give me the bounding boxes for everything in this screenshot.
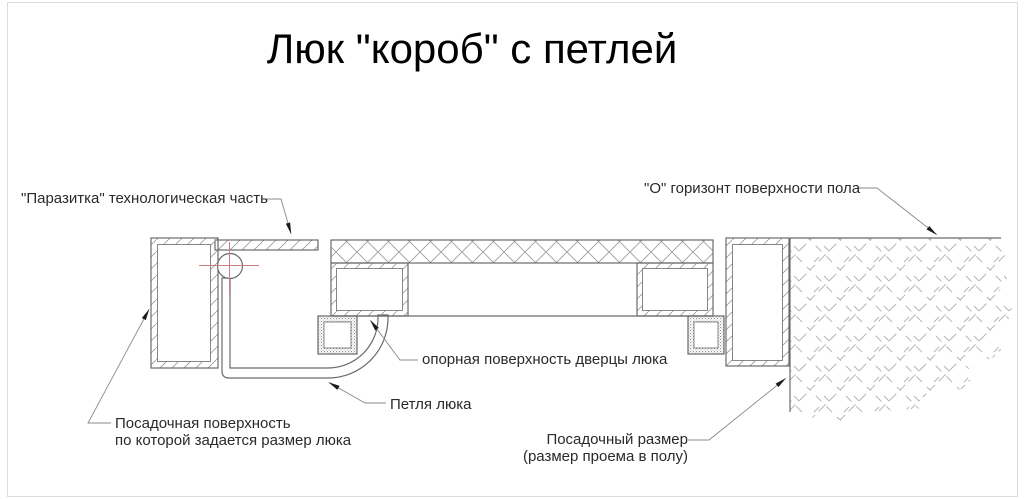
hatch-door-panel [331, 240, 713, 316]
frame-left-profile [151, 238, 218, 368]
door-finish-layer [331, 240, 713, 263]
label-seating-size: Посадочный размер (размер проема в полу) [500, 431, 688, 465]
door-right-profile [637, 263, 713, 316]
concrete-floor-mass [790, 238, 1016, 424]
leader-seating-size [688, 379, 786, 441]
leader-floor-horizon [857, 188, 937, 235]
label-floor-horizon: "О" горизонт поверхности пола [644, 180, 860, 197]
door-left-profile [331, 263, 408, 316]
support-pad-left [318, 316, 357, 354]
support-pad-right [688, 316, 724, 354]
leader-hinge [329, 383, 386, 404]
leader-seating-surface [88, 310, 149, 424]
technical-drawing-page: Люк "короб" с петлей "Паразитка" техноло… [0, 0, 1024, 499]
label-seating-size-line2: (размер проема в полу) [500, 448, 688, 465]
label-seating-size-line1: Посадочный размер [500, 431, 688, 448]
page-title: Люк "короб" с петлей [267, 24, 678, 74]
label-hinge: Петля люка [390, 396, 471, 413]
label-seating-surface-line1: Посадочная поверхность [115, 415, 351, 432]
label-support-surface: опорная поверхность дверцы люка [422, 351, 667, 368]
label-seating-surface: Посадочная поверхность по которой задает… [115, 415, 351, 449]
label-seating-surface-line2: по которой задается размер люка [115, 432, 351, 449]
label-parasitka: "Паразитка" технологическая часть [21, 190, 268, 207]
frame-right-profile [726, 238, 789, 366]
parasitka-flange [215, 240, 318, 250]
